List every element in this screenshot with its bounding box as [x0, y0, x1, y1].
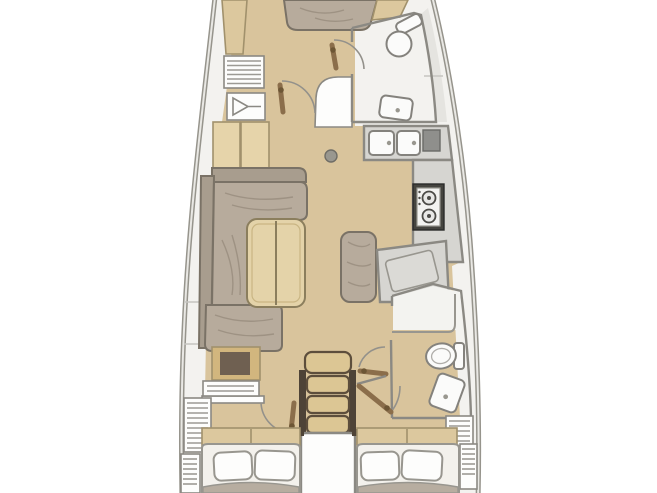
faucet-dot	[387, 141, 391, 145]
fwd-cabinet	[241, 122, 269, 168]
yacht-floor-plan	[0, 0, 657, 493]
pillow	[213, 451, 252, 481]
sofa-chaise	[205, 305, 282, 351]
fwd-cabinet	[213, 122, 240, 168]
dresser	[212, 347, 260, 380]
head-wall	[391, 340, 392, 418]
mast-post-icon	[325, 150, 337, 162]
blanket	[358, 483, 458, 493]
cooler-hatch-icon	[423, 130, 440, 151]
toilet-icon	[387, 32, 412, 57]
door-handle	[361, 368, 367, 374]
stair-step	[307, 376, 349, 393]
hanging-locker	[222, 0, 247, 54]
pillow	[401, 450, 442, 481]
stove-knob	[418, 197, 420, 199]
louver-locker-corner	[460, 444, 477, 489]
stair-rail-left	[299, 370, 306, 434]
dresser-inset	[220, 352, 250, 375]
pillow	[361, 451, 400, 480]
floor-plan-canvas	[0, 0, 657, 493]
door-handle	[384, 405, 390, 411]
burner-center	[427, 196, 431, 200]
faucet-dot	[412, 141, 416, 145]
head-entry-floor	[315, 77, 352, 127]
door-handle	[278, 87, 284, 93]
wardrobe	[227, 93, 265, 120]
sink-icon	[379, 95, 414, 121]
louver-locker-corner	[181, 454, 200, 493]
engine-box	[301, 433, 355, 493]
locker-box	[460, 444, 477, 489]
double-sink-icon	[369, 131, 420, 155]
stove-knob	[418, 203, 420, 205]
sink-right	[397, 131, 420, 155]
pillow	[254, 450, 295, 480]
vent-locker	[224, 56, 264, 88]
stove-icon	[413, 184, 444, 230]
stair-step	[307, 416, 349, 433]
stair-step	[307, 396, 349, 413]
door-handle	[330, 47, 336, 53]
blanket	[203, 483, 299, 493]
nav-seat	[341, 232, 376, 302]
stair-step	[305, 352, 351, 373]
shelf	[203, 381, 259, 396]
sofa-backrest-top	[212, 168, 306, 182]
salon-table	[247, 219, 305, 307]
stove-knob	[418, 191, 420, 193]
shelf-box	[203, 381, 259, 396]
burner-center	[427, 214, 431, 218]
